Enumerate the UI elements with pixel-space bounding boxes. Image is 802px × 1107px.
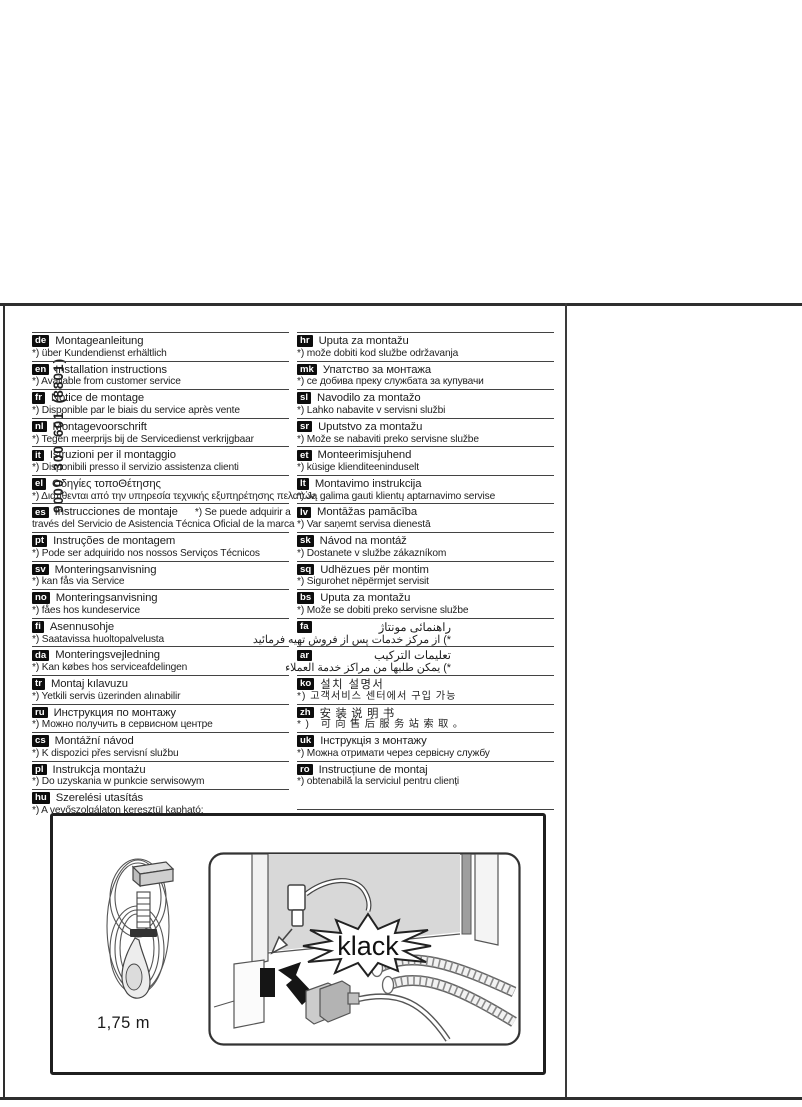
language-title: Istruzioni per il montaggio	[50, 449, 176, 461]
language-code-badge: el	[32, 478, 46, 490]
language-title: Инструкция по монтажу	[54, 707, 176, 719]
page-top-rule	[0, 303, 802, 306]
lang-entry-de: deMontageanleitung*) über Kundendienst e…	[32, 332, 289, 361]
lang-entry-cs: csMontážní návod*) K dispozici přes serv…	[32, 732, 289, 761]
language-code-badge: sl	[297, 392, 311, 404]
language-note: *) Διατίθενται από την υπηρεσία τεχνικής…	[32, 491, 289, 503]
lang-entry-lt: ltMontavimo instrukcija*) Ją galima gaut…	[297, 475, 554, 504]
language-note: *) Saatavissa huoltopalvelusta	[32, 634, 289, 646]
language-note: *) Do uzyskania w punkcie serwisowym	[32, 776, 289, 788]
language-note: *) Disponible par le biais du service ap…	[32, 405, 289, 417]
language-title: Udhëzues për montim	[320, 564, 429, 576]
klack-label: klack	[337, 931, 399, 961]
lang-entry-mk: mkУпатство за монтажа*) се добива преку …	[297, 361, 554, 390]
language-title: Упатство за монтажа	[323, 364, 431, 376]
language-title: Montāžas pamācība	[317, 506, 417, 518]
lang-entry-et: etMonteerimisjuhend*) küsige klienditeen…	[297, 446, 554, 475]
language-code-badge: ko	[297, 678, 314, 690]
language-title: Monteringsvejledning	[55, 649, 160, 661]
language-note: *) kan fås via Service	[32, 576, 289, 588]
language-note: *) Dostanete v službe zákazníkom	[297, 548, 554, 560]
language-code-badge: sv	[32, 564, 49, 576]
language-code-badge: no	[32, 592, 50, 604]
language-note: *) Može se dobiti preko servisne službe	[297, 605, 554, 617]
language-code-badge: et	[297, 450, 312, 462]
lang-entry-el: elΟδηγίες τοποΘέτησης*) Διατίθενται από …	[32, 475, 289, 504]
lang-entry-fa: faراهنمائی مونتاژ*) از مرکز خدمات پس از …	[297, 618, 554, 647]
lang-entry-es: esInstrucciones de montaje*) Se puede ad…	[32, 503, 289, 532]
language-title: Monteerimisjuhend	[318, 449, 412, 461]
language-title: Installation instructions	[55, 364, 167, 376]
language-note: *) Može se nabaviti preko servisne služb…	[297, 434, 554, 446]
language-title: Montageanleitung	[55, 335, 143, 347]
language-note: *) Disponibili presso il servizio assist…	[32, 462, 289, 474]
lang-entry-pl: plInstrukcja montażu*) Do uzyskania w pu…	[32, 761, 289, 790]
language-note: *) Pode ser adquirido nos nossos Serviço…	[32, 548, 289, 560]
language-code-badge: hu	[32, 792, 50, 804]
socket-opening	[260, 968, 275, 997]
language-code-badge: cs	[32, 735, 49, 747]
language-code-badge: sq	[297, 564, 314, 576]
appliance-left-foot	[234, 960, 264, 1028]
lang-entry-sk: skNávod na montáž*) Dostanete v službe z…	[297, 532, 554, 561]
lang-entry-zh: zh安装说明书*) 可向售后服务站索取。	[297, 704, 554, 733]
language-note: *) از مرکز خدمات پس از فروش تهیه فرمائید	[297, 634, 554, 646]
manual-page: { "document": { "part_number": "9000 300…	[0, 0, 802, 1107]
language-code-badge: da	[32, 650, 49, 662]
lang-entry-fi: fiAsennusohje*) Saatavissa huoltopalvelu…	[32, 618, 289, 647]
language-code-badge: pl	[32, 764, 47, 776]
language-code-badge: zh	[297, 707, 314, 719]
lang-entry-ro: roInstrucțiune de montaj*) obtenabilă la…	[297, 761, 554, 790]
language-note: *) Lahko nabavite v servisni službi	[297, 405, 554, 417]
language-code-badge: mk	[297, 364, 317, 376]
language-code-badge: lt	[297, 478, 309, 490]
language-title: 설치 설명서	[320, 676, 384, 692]
language-note: *) über Kundendienst erhältlich	[32, 348, 289, 360]
lang-entry-da: daMonteringsvejledning*) Kan købes hos s…	[32, 646, 289, 675]
language-code-badge: it	[32, 450, 44, 462]
language-note: *) Kan købes hos serviceafdelingen	[32, 662, 289, 674]
lang-entry-it: itIstruzioni per il montaggio*) Disponib…	[32, 446, 289, 475]
language-code-badge: ru	[32, 707, 48, 719]
language-note: *) 可向售后服务站索取。	[297, 719, 554, 731]
language-code-badge: hr	[297, 335, 313, 347]
table-closing-rule	[297, 789, 554, 810]
language-list: deMontageanleitung*) über Kundendienst e…	[32, 332, 554, 818]
language-note: través del Servicio de Asistencia Técnic…	[32, 519, 289, 531]
language-note: *) obtenabilă la serviciul pentru clienț…	[297, 776, 554, 788]
lang-entry-tr: trMontaj kılavuzu*) Yetkili servis üzeri…	[32, 675, 289, 704]
language-code-badge: pt	[32, 535, 47, 547]
lang-entry-sr: srUputstvo za montažu*) Može se nabaviti…	[297, 418, 554, 447]
lang-entry-lv: lvMontāžas pamācība*) Var saņemt servisa…	[297, 503, 554, 532]
language-code-badge: ar	[297, 650, 312, 662]
language-code-badge: sk	[297, 535, 314, 547]
language-title: Instrucțiune de montaj	[319, 764, 428, 776]
lang-entry-sv: svMonteringsanvisning*) kan fås via Serv…	[32, 561, 289, 590]
language-title: Uputa za montažu	[319, 335, 409, 347]
language-note: *) Tegen meerprijs bij de Servicedienst …	[32, 434, 289, 446]
language-note: *) Можна отримати через сервісну службу	[297, 748, 554, 760]
language-title: Montážní návod	[55, 735, 134, 747]
language-code-badge: sr	[297, 421, 312, 433]
lang-entry-hr: hrUputa za montažu*) može dobiti kod slu…	[297, 332, 554, 361]
language-title: تعليمات التركيب	[374, 648, 554, 662]
language-title: Montagevoorschrift	[53, 421, 147, 433]
language-code-badge: tr	[32, 678, 45, 690]
page-left-border	[3, 303, 5, 1099]
lang-entry-no: noMonteringsanvisning*) fåes hos kundese…	[32, 589, 289, 618]
language-note: *) Sigurohet nëpërmjet servisit	[297, 576, 554, 588]
language-code-badge: bs	[297, 592, 314, 604]
language-title: Montaj kılavuzu	[51, 678, 128, 690]
language-title: Οδηγίες τοποΘέτησης	[52, 478, 161, 490]
lang-entry-sq: sqUdhëzues për montim*) Sigurohet nëpërm…	[297, 561, 554, 590]
language-note: *) Можно получить в сервисном центре	[32, 719, 289, 731]
cord-plug-icon	[122, 938, 150, 998]
language-title: Navodilo za montažo	[317, 392, 421, 404]
appliance-rear-illustration: klack	[208, 852, 521, 1046]
lang-entry-pt: ptInstruções de montagem*) Pode ser adqu…	[32, 532, 289, 561]
language-note: *) K dispozici přes servisní službu	[32, 748, 289, 760]
language-note: *) Var saņemt servisa dienestā	[297, 519, 554, 531]
language-note: *) Available from customer service	[32, 376, 289, 388]
language-code-badge: uk	[297, 735, 314, 747]
lang-entry-ar: arتعليمات التركيب*) يمكن طلبها من مراكز …	[297, 646, 554, 675]
page-column-divider	[565, 303, 567, 1099]
language-note: *) Ją galima gauti klientų aptarnavimo s…	[297, 491, 554, 503]
language-title: Monteringsanvisning	[55, 564, 157, 576]
language-note: *) može dobiti kod službe održavanja	[297, 348, 554, 360]
language-title: Monteringsanvisning	[56, 592, 158, 604]
language-title: Instrucciones de montaje	[55, 506, 178, 518]
language-title: راهنمائی مونتاژ	[379, 620, 554, 634]
language-code-badge: fr	[32, 392, 45, 404]
language-note: *) küsige klienditeeninduselt	[297, 462, 554, 474]
language-code-badge: lv	[297, 507, 311, 519]
language-code-badge: fa	[297, 621, 312, 633]
language-code-badge: ro	[297, 764, 313, 776]
language-note-inline: *) Se puede adquirir a	[195, 507, 291, 518]
language-title: Montavimo instrukcija	[315, 478, 422, 490]
lang-entry-ko: ko설치 설명서*) 고객서비스 센터에서 구입 가능	[297, 675, 554, 704]
language-note: *) се добива преку службата за купувачи	[297, 376, 554, 388]
lang-entry-sl: slNavodilo za montažo*) Lahko nabavite v…	[297, 389, 554, 418]
power-cord-illustration	[93, 846, 185, 1006]
language-note: *) يمكن طلبها من مراكز خدمة العملاء	[297, 662, 554, 674]
cord-length-label: 1,75 m	[97, 1014, 150, 1033]
lang-entry-en: enInstallation instructions*) Available …	[32, 361, 289, 390]
language-code-badge: de	[32, 335, 49, 347]
lang-entry-uk: ukІнструкція з монтажу*) Можна отримати …	[297, 732, 554, 761]
appliance-left-rail	[252, 854, 268, 965]
language-code-badge: fi	[32, 621, 44, 633]
language-column-right: hrUputa za montažu*) može dobiti kod slu…	[297, 332, 554, 818]
language-title: Asennusohje	[50, 621, 114, 633]
language-title: Szerelési utasítás	[56, 792, 143, 804]
language-title: Návod na montáž	[320, 535, 407, 547]
language-note: *) 고객서비스 센터에서 구입 가능	[297, 691, 554, 703]
lang-entry-bs: bsUputa za montažu*) Može se dobiti prek…	[297, 589, 554, 618]
language-title: Instrukcja montażu	[53, 764, 146, 776]
language-title: Notice de montage	[51, 392, 144, 404]
language-title: Інструкція з монтажу	[320, 735, 426, 747]
installation-figure: 1,75 m	[50, 813, 546, 1075]
lang-entry-fr: frNotice de montage*) Disponible par le …	[32, 389, 289, 418]
language-code-badge: en	[32, 364, 49, 376]
language-title: Uputstvo za montažu	[318, 421, 422, 433]
language-title: Instruções de montagem	[53, 535, 175, 547]
language-column-left: deMontageanleitung*) über Kundendienst e…	[32, 332, 289, 818]
language-code-badge: es	[32, 507, 49, 519]
lang-entry-ru: ruИнструкция по монтажу*) Можно получить…	[32, 704, 289, 733]
page-bottom-rule	[0, 1097, 802, 1100]
language-title: Uputa za montažu	[320, 592, 410, 604]
lang-entry-nl: nlMontagevoorschrift*) Tegen meerprijs b…	[32, 418, 289, 447]
language-code-badge: nl	[32, 421, 47, 433]
language-note: *) Yetkili servis üzerinden alınabilir	[32, 691, 289, 703]
language-note: *) fåes hos kundeservice	[32, 605, 289, 617]
